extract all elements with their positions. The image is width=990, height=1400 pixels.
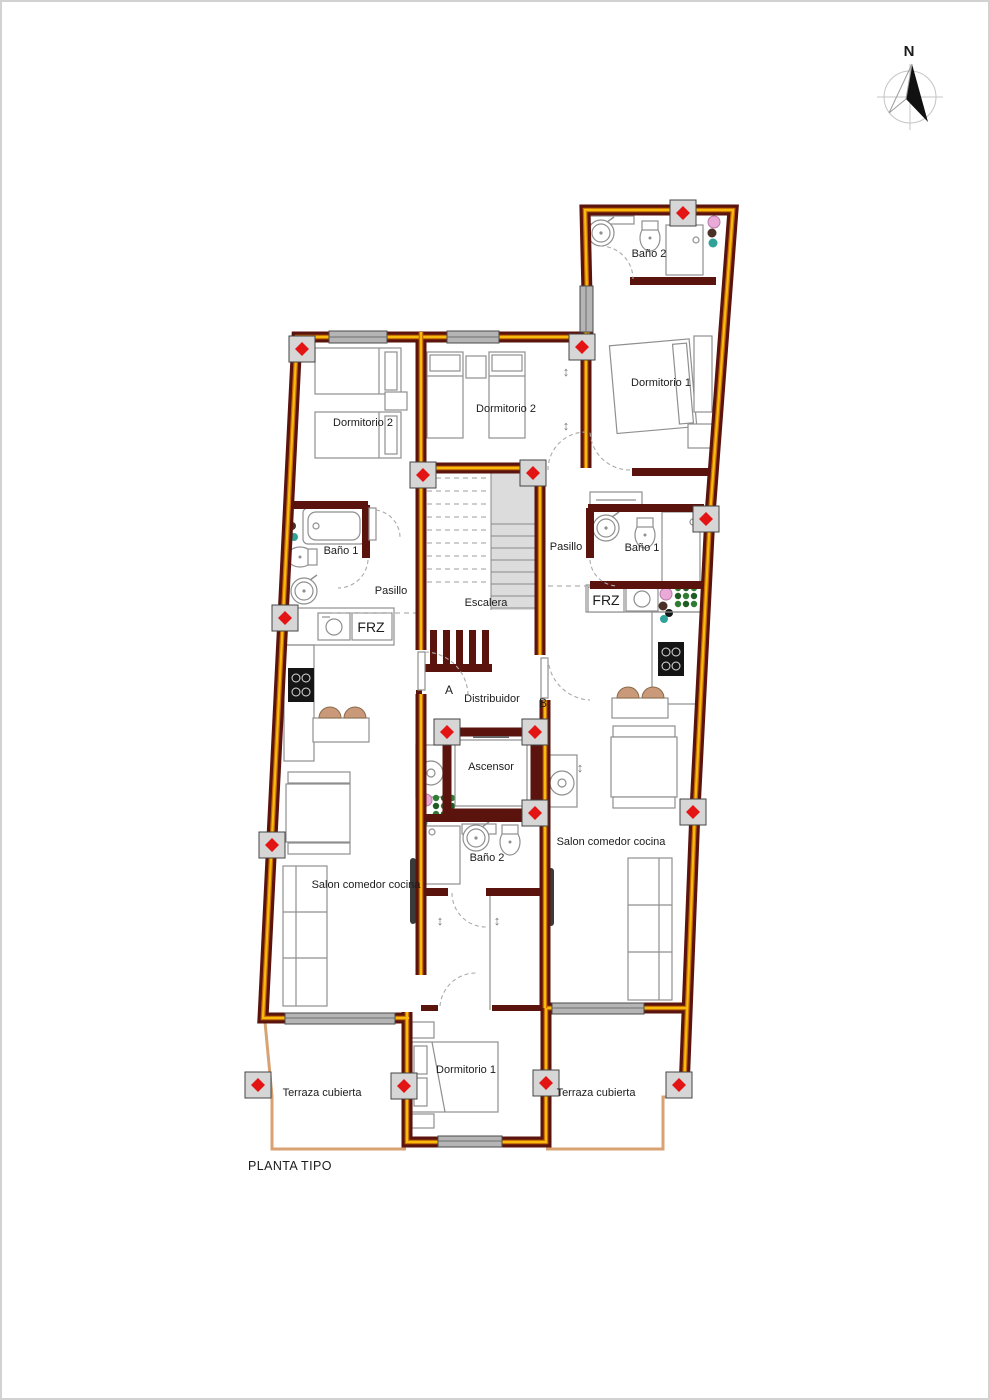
sliding-door-arrow: ↕ [494,913,501,928]
floor-plan-page: ↕ ↕ ↕ ↕ ↕ [0,0,990,1400]
room-label-bano2-top: Baño 2 [632,248,667,260]
bedroom-2-mid-furniture [427,352,525,438]
sliding-door-arrow: ↕ [577,760,584,775]
room-label-pasillo-left: Pasillo [375,585,407,597]
room-label-dormitorio1-top: Dormitorio 1 [631,377,691,389]
stair-comb [430,630,489,666]
column-marker [522,719,548,745]
bedroom-1-top-furniture [609,336,712,448]
bathroom-2-top-fixtures [588,216,720,275]
accessory-dot-pink [708,216,720,228]
room-label-terraza-left: Terraza cubierta [283,1087,363,1099]
column-marker [289,336,315,362]
unit-label-a: A [445,683,453,697]
column-marker [533,1070,559,1096]
room-label-bano2-mid: Baño 2 [470,852,505,864]
accessory-dot-teal [709,239,718,248]
sliding-door-arrow: ↕ [563,364,570,379]
column-marker [520,460,546,486]
compass-needle [906,64,928,122]
column-marker [410,462,436,488]
kitchen-left [284,608,394,854]
column-marker [259,832,285,858]
room-label-salon-right: Salon comedor cocina [557,836,667,848]
room-label-dormitorio2-left: Dormitorio 2 [333,417,393,429]
unit-label-b: B [539,696,547,710]
column-marker [693,506,719,532]
column-marker [522,800,548,826]
appliance-label-frz-left: FRZ [357,619,385,635]
room-label-escalera: Escalera [465,597,509,609]
room-label-terraza-right: Terraza cubierta [557,1087,637,1099]
living-room-right [548,858,672,1000]
kitchen-right [586,585,704,808]
room-label-dormitorio1-bottom: Dormitorio 1 [436,1064,496,1076]
column-marker [569,334,595,360]
bedroom-2-left-furniture [315,348,407,458]
room-label-dormitorio2-mid: Dormitorio 2 [476,403,536,415]
north-compass: N [877,43,943,130]
sliding-door-arrow: ↕ [437,913,444,928]
column-marker [670,200,696,226]
column-marker [272,605,298,631]
room-label-bano1-right: Baño 1 [625,542,660,554]
room-label-pasillo-right: Pasillo [550,541,582,553]
staircase [427,466,540,610]
floor-plan-drawing: ↕ ↕ ↕ ↕ ↕ [0,0,990,1400]
column-marker [434,719,460,745]
appliance-label-frz-right: FRZ [592,592,620,608]
room-label-salon-left: Salon comedor cocina [312,879,422,891]
accessory-dot-brown [708,229,717,238]
room-label-distribuidor: Distribuidor [464,693,520,705]
column-marker [666,1072,692,1098]
column-marker [245,1072,271,1098]
column-marker [391,1073,417,1099]
column-marker [680,799,706,825]
room-label-bano1-left: Baño 1 [324,545,359,557]
plan-title: PLANTA TIPO [248,1159,332,1173]
tv-icon [410,858,416,924]
sliding-door-arrow: ↕ [563,418,570,433]
room-label-ascensor: Ascensor [468,761,514,773]
compass-north-label: N [904,43,915,60]
